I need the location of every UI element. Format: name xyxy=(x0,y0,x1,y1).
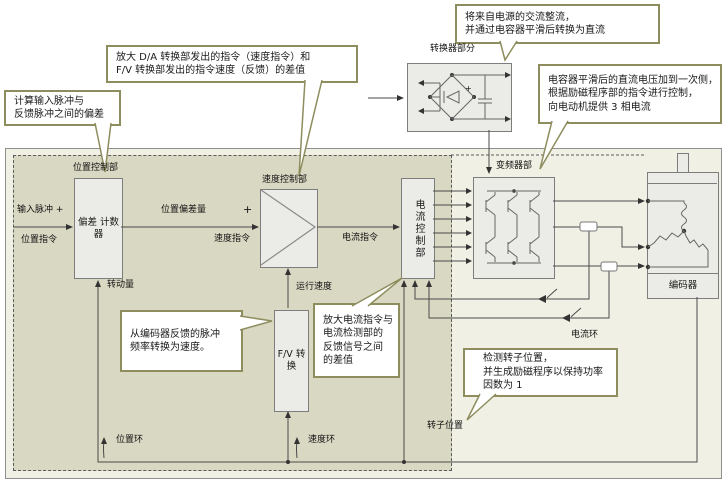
motor-endbell-divider xyxy=(647,183,717,184)
converter-section-label: 转换器部分 xyxy=(430,44,475,55)
fv-converter-label: F/V 转换 xyxy=(275,349,308,373)
plus-sign-label: + xyxy=(243,204,252,215)
encoder-label: 编码器 xyxy=(669,280,698,292)
callout-fv-feedback: 从编码器反馈的脉冲 频率转换为速度。 xyxy=(120,310,243,372)
deviation-counter-block: 偏差 计数器 xyxy=(74,178,123,279)
callout-dc-voltage: 电容器平滑后的直流电压加到一次侧， 根据励磁程序部的指令进行控制， 向电动机提供… xyxy=(538,64,722,124)
diagram-page: { "callouts": { "rectifier": {"line1": "… xyxy=(0,0,727,484)
speed-amplifier-block xyxy=(260,189,318,268)
inverter-block xyxy=(473,177,555,279)
callout-current-amplify: 放大电流指令与 电流检测部的 反馈信号之间 的差值 xyxy=(313,303,400,378)
callout-rectifier: 将来自电源的交流整流， 并通过电容器平滑后转换为直流 xyxy=(455,4,660,44)
speed-control-section-label: 速度控制部 xyxy=(262,175,307,186)
callout-pulse-deviation: 计算输入脉冲与 反馈脉冲之间的偏差 xyxy=(4,90,121,126)
input-pulse-label: 输入脉冲 + xyxy=(17,205,63,216)
deviation-counter-label: 偏差 计数器 xyxy=(75,217,122,241)
rotation-amount-label: 转动量 xyxy=(107,280,134,291)
fv-converter-block: F/V 转换 xyxy=(274,310,309,412)
position-cmd-label: 位置指令 xyxy=(21,235,57,246)
position-loop-label: 位置环 xyxy=(116,435,143,446)
current-control-block: 电流控制部 xyxy=(401,178,435,279)
encoder-block: 编码器 xyxy=(647,273,719,299)
speed-loop-label: 速度环 xyxy=(308,435,335,446)
converter-block xyxy=(407,63,512,132)
position-deviation-label: 位置偏差量 xyxy=(161,205,206,216)
inverter-section-label: 变频器部 xyxy=(496,161,532,172)
capacitor-plus-label: + xyxy=(465,83,472,94)
run-speed-label: 运行速度 xyxy=(296,282,332,293)
callout-speed-amplify: 放大 D/A 转换部发出的指令（速度指令）和 F/V 转换部发出的指令速度（反馈… xyxy=(106,45,358,83)
callout-rotor-detect: 检测转子位置， 并生成励磁程序以保持功率 因数为 1 xyxy=(463,348,618,397)
current-cmd-label: 电流指令 xyxy=(342,233,378,244)
speed-cmd-label: 速度指令 xyxy=(214,234,250,245)
rotor-position-label: 转子位置 xyxy=(427,421,463,432)
position-control-section-label: 位置控制部 xyxy=(73,163,118,174)
current-control-label: 电流控制部 xyxy=(412,199,424,259)
current-loop-label: 电流环 xyxy=(571,330,598,341)
